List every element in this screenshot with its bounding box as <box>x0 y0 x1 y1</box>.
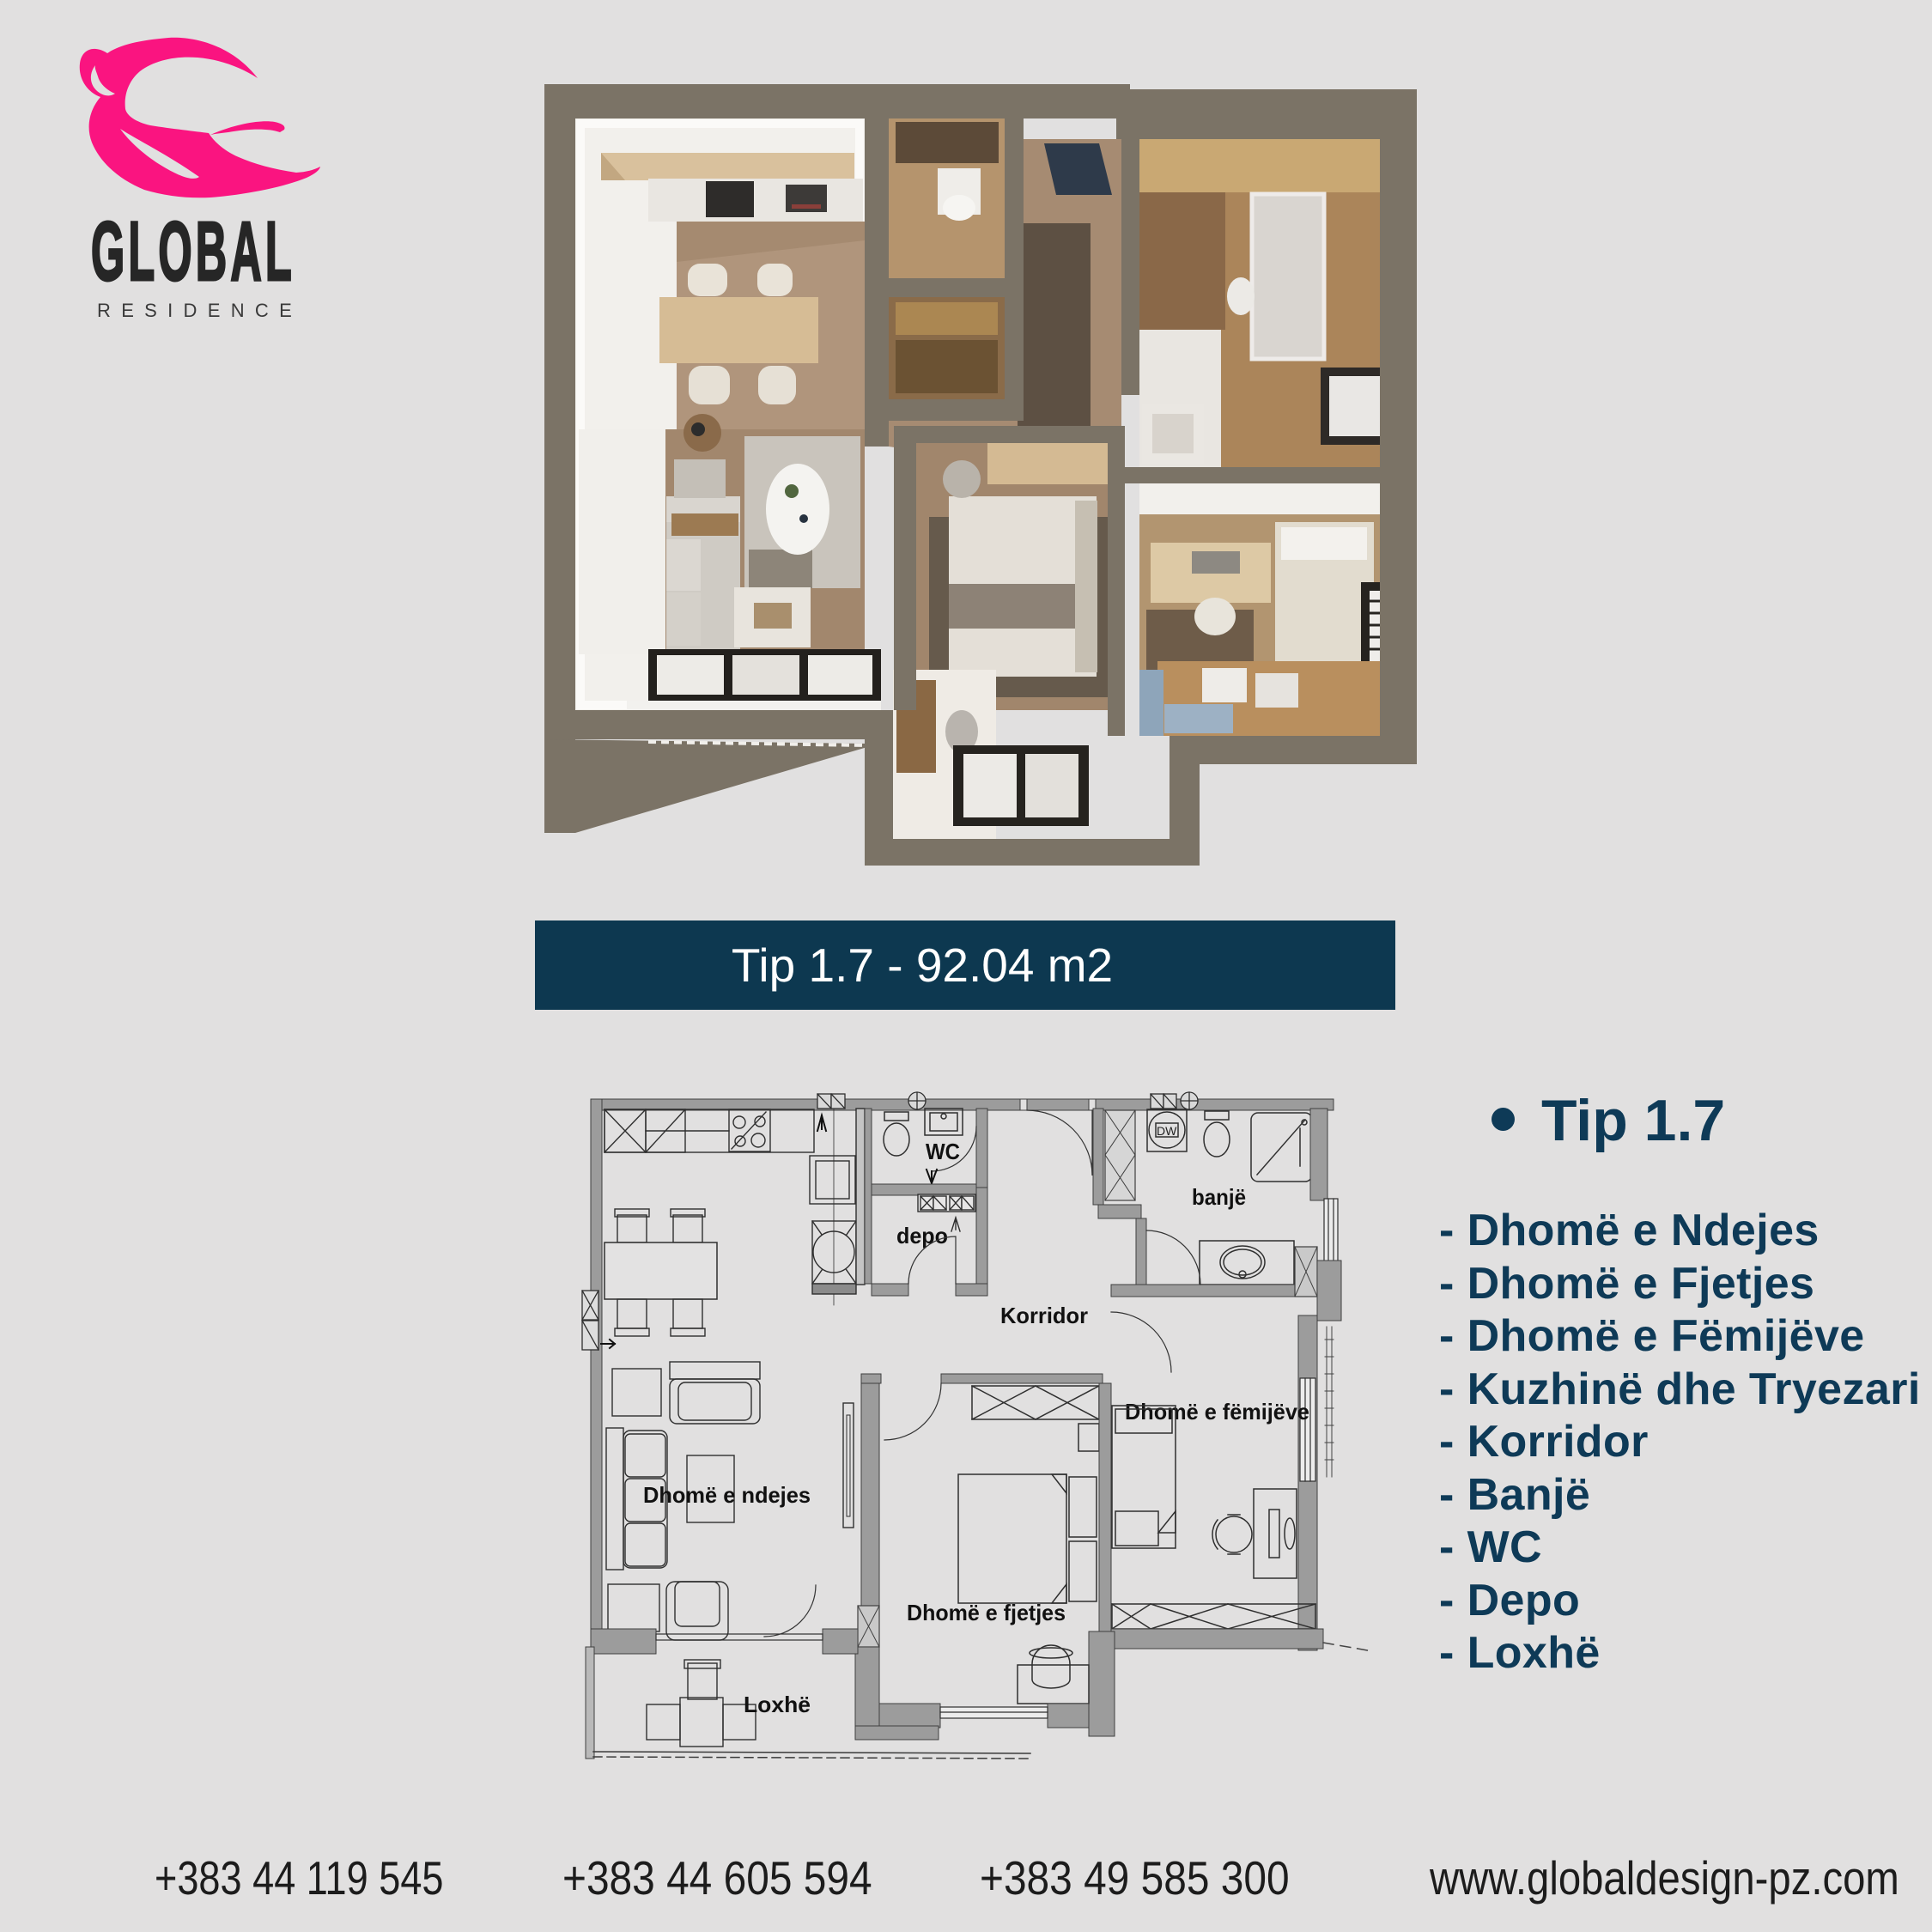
svg-text:Loxhë: Loxhë <box>744 1692 811 1717</box>
svg-text:Dhomë e ndejes: Dhomë e ndejes <box>643 1482 811 1508</box>
svg-text:Dhomë e fjetjes: Dhomë e fjetjes <box>907 1600 1066 1625</box>
svg-text:banjë: banjë <box>1192 1184 1246 1210</box>
svg-text:depo: depo <box>896 1223 948 1249</box>
svg-text:Dhomë e fëmijëve: Dhomë e fëmijëve <box>1125 1399 1309 1425</box>
svg-text:DW: DW <box>1157 1124 1177 1138</box>
svg-text:WC: WC <box>926 1139 960 1164</box>
svg-text:Korridor: Korridor <box>1000 1303 1088 1328</box>
